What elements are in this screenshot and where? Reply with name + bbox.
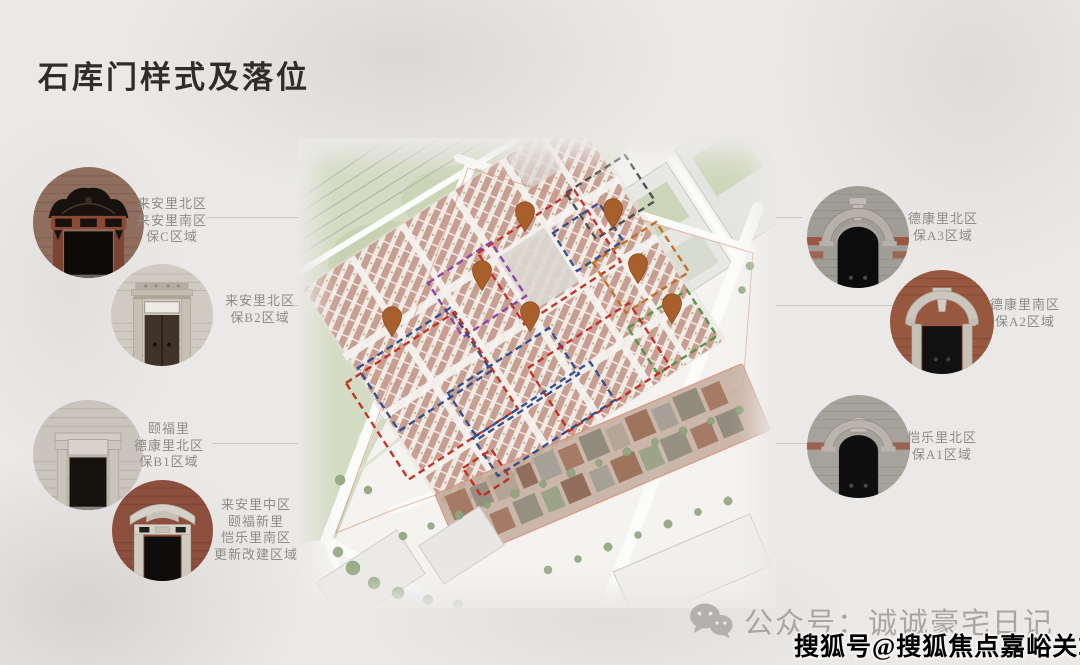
sohu-watermark-text: 搜狐号@搜狐焦点嘉峪关站: [794, 627, 1080, 663]
gate-photo-bao-b2: [111, 264, 213, 366]
annotation-bao-a1: 恺乐里北区 保A1区域: [901, 430, 983, 463]
annotation-bao-c: 来安里北区 来安里南区 保C区域: [131, 196, 213, 246]
annotation-renewal: 来安里中区 颐福新里 恺乐里南区 更新改建区域: [208, 497, 304, 563]
annotation-line: 更新改建区域: [208, 547, 304, 564]
annotation-line: 颐福新里: [208, 514, 304, 531]
annotation-line: 保A3区域: [902, 228, 984, 245]
annotation-line: 恺乐里南区: [208, 530, 304, 547]
annotation-line: 颐福里: [128, 421, 210, 438]
annotation-line: 恺乐里北区: [901, 430, 983, 447]
annotation-line: 德康里北区: [902, 211, 984, 228]
gate-photo-bao-a2: [890, 270, 994, 374]
annotation-line: 保B1区域: [128, 454, 210, 471]
annotation-bao-a2: 德康里南区 保A2区域: [984, 297, 1066, 330]
page-title: 石库门样式及落位: [38, 52, 310, 97]
annotation-line: 保B2区域: [219, 310, 301, 327]
annotation-line: 德康里南区: [984, 297, 1066, 314]
annotation-line: 来安里南区: [131, 213, 213, 230]
slide: 石库门样式及落位: [0, 0, 1080, 665]
annotation-bao-b2: 来安里北区 保B2区域: [219, 293, 301, 326]
annotation-line: 来安里北区: [131, 196, 213, 213]
gate-photo-bao-a1: [807, 395, 910, 498]
gate-photo-bao-a3: [807, 186, 909, 288]
annotation-line: 德康里北区: [128, 438, 210, 455]
annotation-line: 保C区域: [131, 229, 213, 246]
gate-photo-bao-c: [33, 167, 144, 278]
site-plan-map: [298, 138, 776, 608]
annotation-line: 来安里北区: [219, 293, 301, 310]
annotation-bao-a3: 德康里北区 保A3区域: [902, 211, 984, 244]
wechat-icon: [688, 602, 734, 640]
annotation-line: 来安里中区: [208, 497, 304, 514]
annotation-line: 保A2区域: [984, 314, 1066, 331]
site-plan-drawing: [298, 138, 776, 608]
gate-photo-renewal: [112, 480, 213, 581]
annotation-bao-b1: 颐福里 德康里北区 保B1区域: [128, 421, 210, 471]
annotation-line: 保A1区域: [901, 447, 983, 464]
